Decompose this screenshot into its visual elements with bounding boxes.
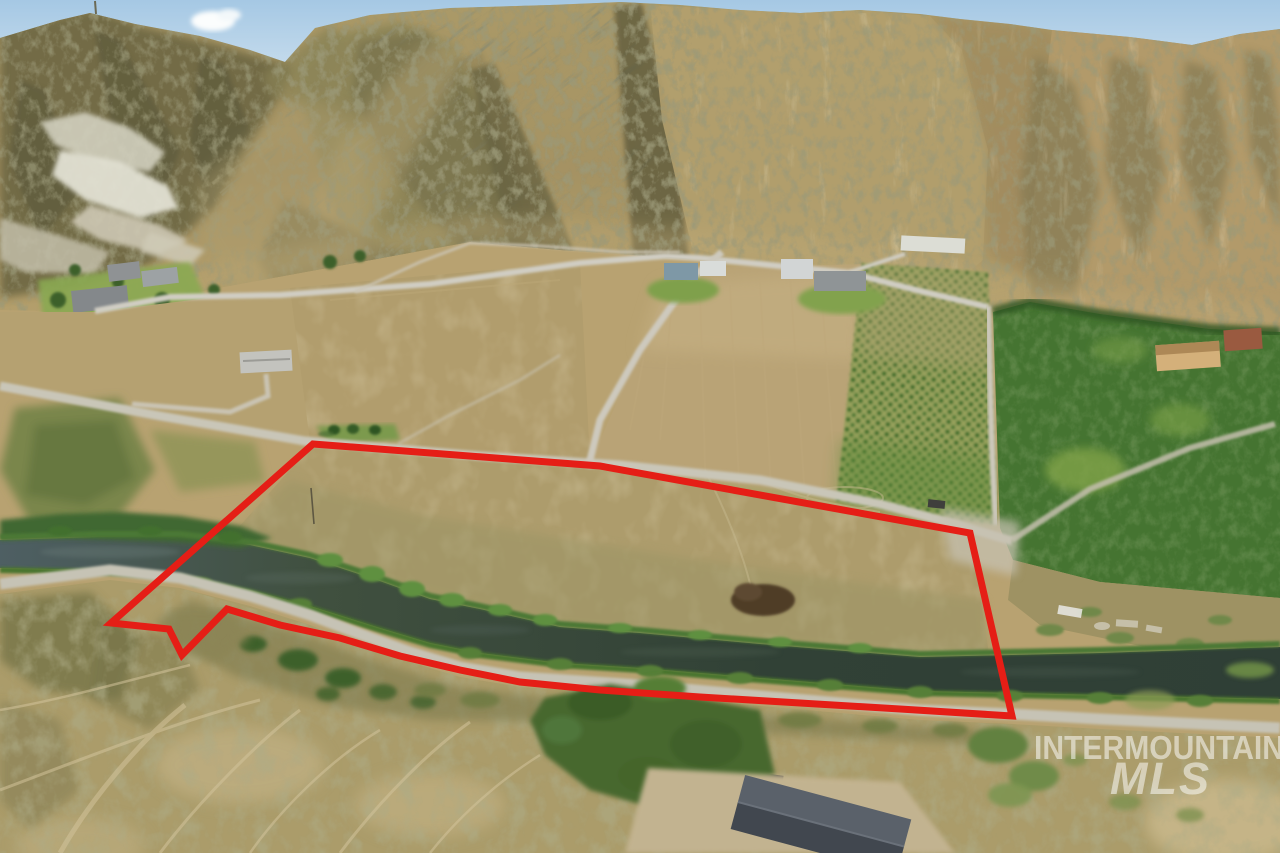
svg-text:MLS: MLS [1110, 753, 1211, 804]
